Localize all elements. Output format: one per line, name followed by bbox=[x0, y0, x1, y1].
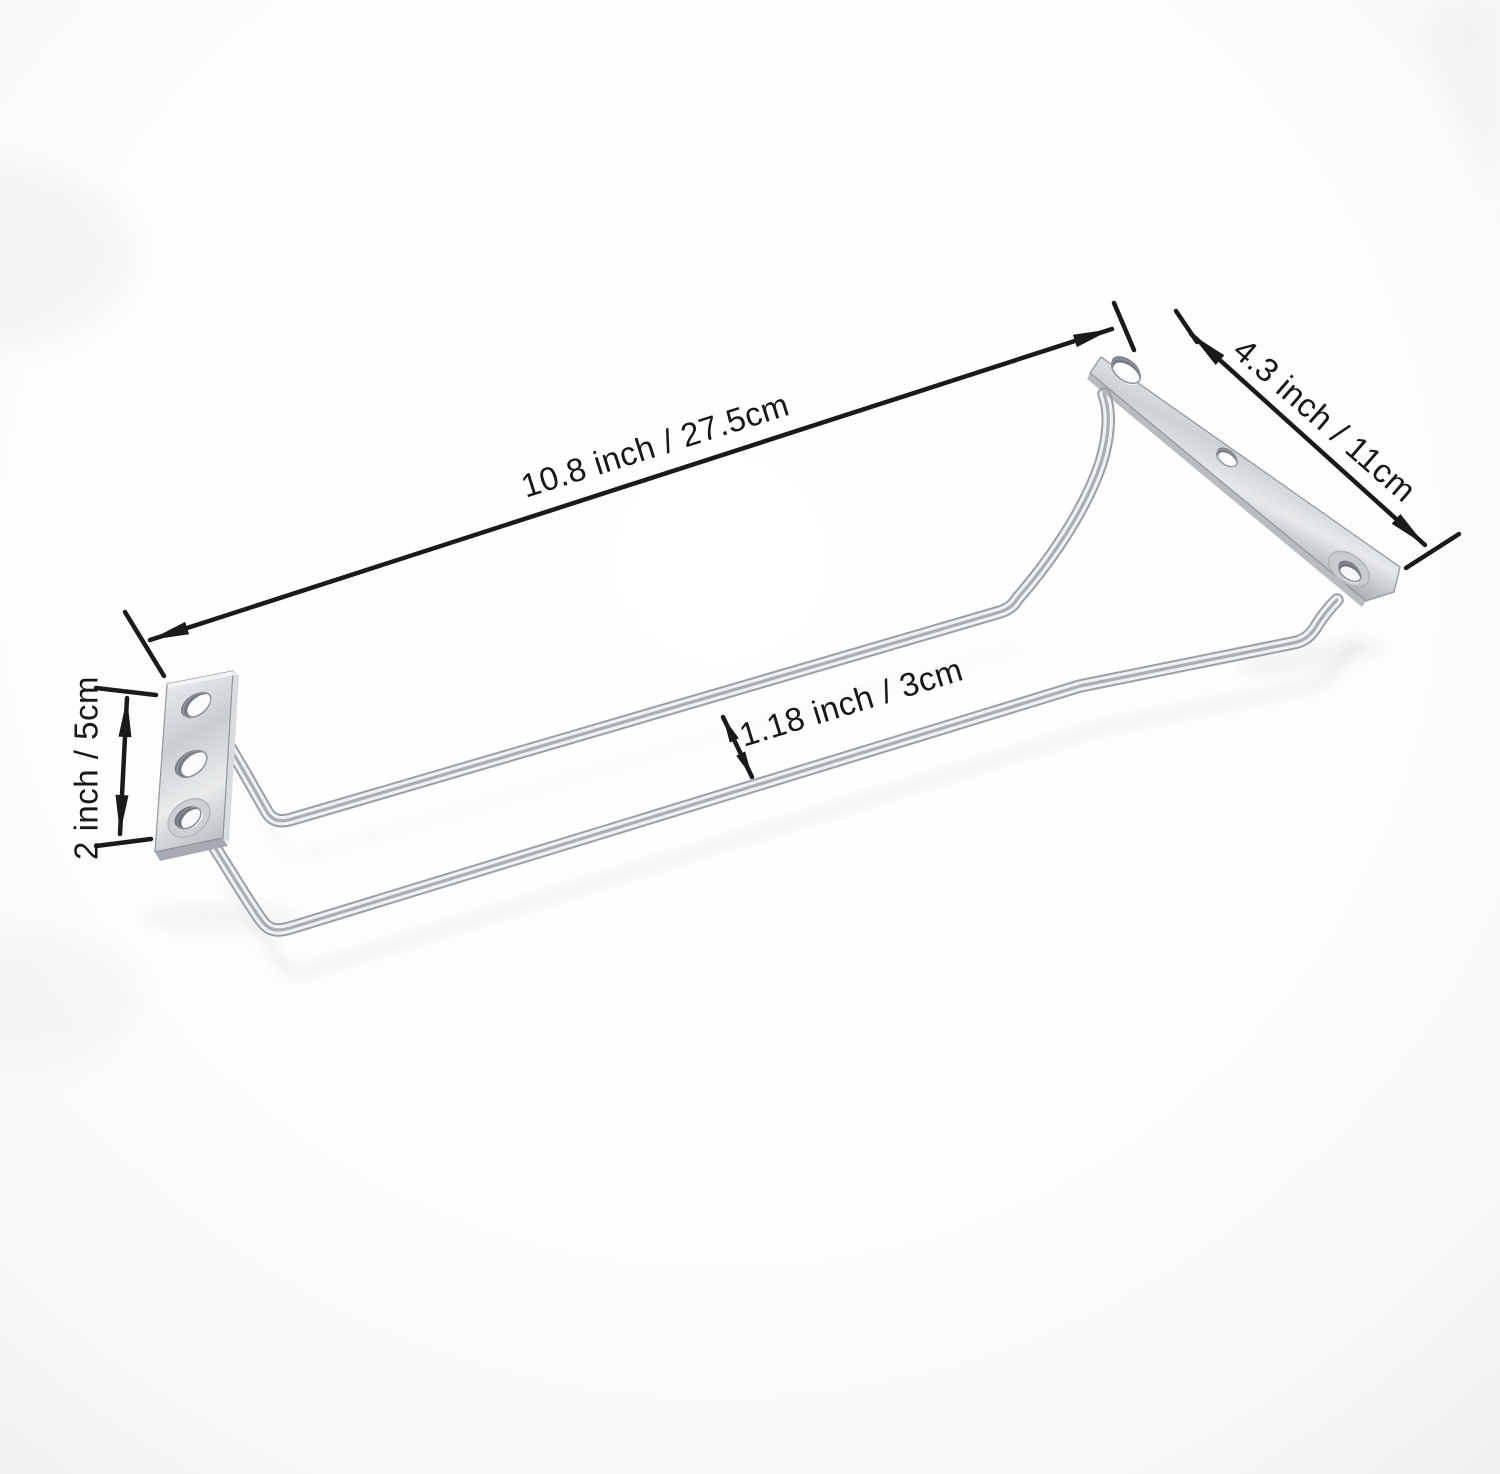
left-mounting-plate bbox=[155, 671, 239, 861]
stemware-rack-dimension-diagram: 10.8 inch / 27.5cm 4.3 inch / 11cm 2 inc… bbox=[0, 0, 1500, 1474]
dimension-label-plate-height: 2 inch / 5cm bbox=[68, 676, 105, 860]
product-image: 10.8 inch / 27.5cm 4.3 inch / 11cm 2 inc… bbox=[0, 0, 1500, 1474]
